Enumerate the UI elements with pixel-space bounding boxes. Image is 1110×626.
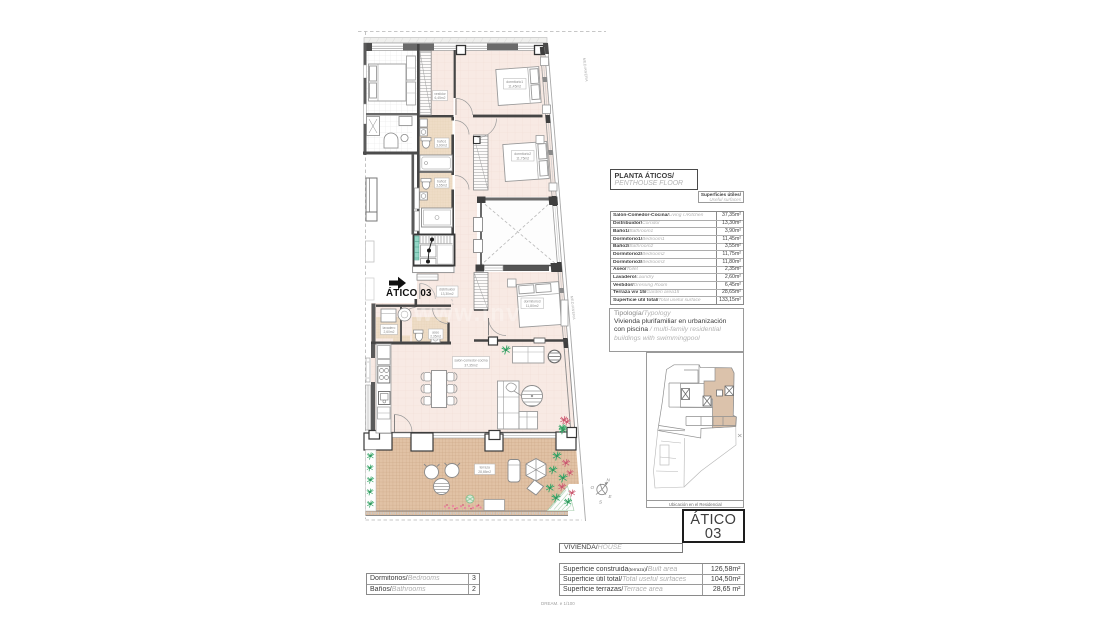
svg-text:distribuidor: distribuidor	[439, 288, 456, 292]
svg-text:11,75m2: 11,75m2	[516, 157, 529, 161]
svg-text:dormitorio1: dormitorio1	[506, 80, 523, 84]
svg-text:3,90m2: 3,90m2	[436, 144, 447, 148]
svg-text:28,65m2: 28,65m2	[478, 470, 491, 474]
svg-text:www.inve: www.inve	[413, 300, 536, 327]
svg-text:S: S	[599, 500, 603, 505]
svg-text:6,45m2: 6,45m2	[435, 96, 446, 100]
svg-text:11,45m2: 11,45m2	[508, 85, 521, 89]
svg-text:13,30m2: 13,30m2	[441, 292, 454, 296]
svg-text:2,35m2: 2,35m2	[430, 335, 441, 339]
svg-text:dormitorio2: dormitorio2	[514, 152, 531, 156]
svg-text:terraza: terraza	[480, 465, 490, 469]
svg-text:2,60m2: 2,60m2	[384, 330, 395, 334]
svg-text:3,55m2: 3,55m2	[436, 184, 447, 188]
svg-text:MEDIANERA: MEDIANERA	[570, 296, 577, 321]
svg-text:N: N	[607, 478, 611, 483]
svg-text:baño2: baño2	[437, 179, 446, 183]
svg-text:ÁTICO 03: ÁTICO 03	[386, 287, 432, 299]
svg-text:DREAM. e 1/100: DREAM. e 1/100	[541, 601, 575, 606]
svg-text:MEDIANERA: MEDIANERA	[582, 58, 589, 83]
svg-text:37,35m2: 37,35m2	[464, 363, 477, 367]
svg-text:aseo: aseo	[432, 330, 439, 334]
svg-text:salón-comedor-cocina: salón-comedor-cocina	[454, 359, 487, 363]
svg-text:lavadero: lavadero	[383, 326, 396, 330]
svg-text:vestidor: vestidor	[434, 92, 446, 96]
svg-text:E: E	[609, 494, 613, 499]
svg-text:O: O	[591, 485, 595, 490]
svg-text:baño1: baño1	[437, 139, 446, 143]
